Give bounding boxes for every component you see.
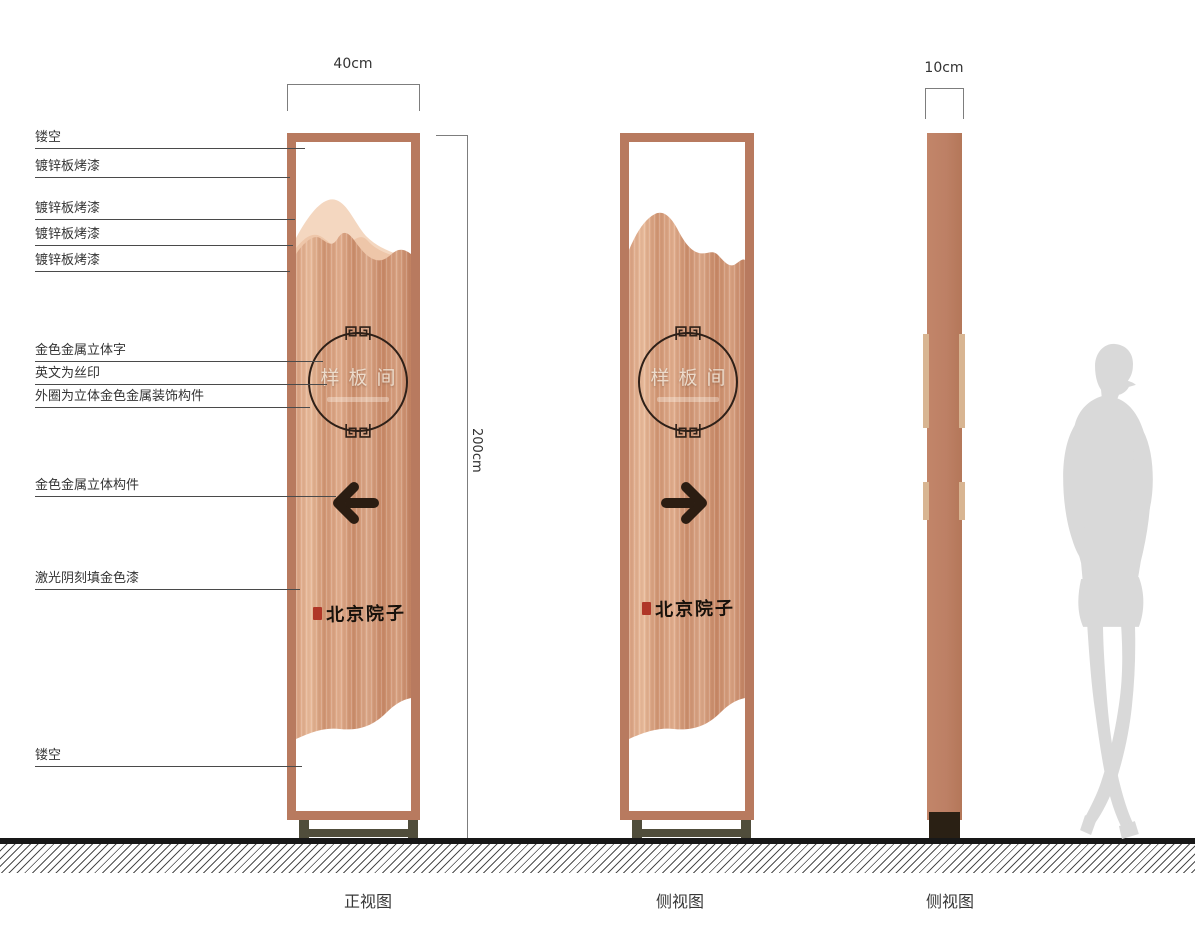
human-silhouette <box>1038 340 1170 848</box>
arrow-right-icon <box>660 481 710 526</box>
brand-text: 北京院子 <box>325 599 406 627</box>
callout-gold-metal-component: 金色金属立体构件 <box>35 478 336 497</box>
brand-text: 北京院子 <box>654 594 735 622</box>
dimension-height-label: 200cm <box>469 428 484 473</box>
callout-hollow-bottom: 镂空 <box>35 748 302 767</box>
fret-ornament-top-icon <box>345 326 371 340</box>
side2-protruding-arrow-right <box>959 482 965 520</box>
signage-spec-drawing: 样板间 北京院子 <box>0 0 1195 927</box>
plaque-english-silkprint <box>657 397 719 402</box>
red-seal-icon <box>642 602 651 615</box>
callout-label: 外圈为立体金色金属装饰构件 <box>35 389 204 404</box>
caption-side-view-1: 侧视图 <box>614 888 746 912</box>
fret-ornament-top-icon <box>675 326 701 340</box>
callout-label: 激光阴刻填金色漆 <box>35 571 139 586</box>
callout-label: 金色金属立体字 <box>35 343 126 358</box>
caption-front-view: 正视图 <box>302 888 434 912</box>
side2-base-block <box>929 812 960 838</box>
callout-outer-ring: 外圈为立体金色金属装饰构件 <box>35 389 310 408</box>
copper-panel-texture <box>629 213 745 739</box>
arrow-left-icon <box>330 481 380 526</box>
front-base-bar <box>305 829 413 837</box>
callout-label: 金色金属立体构件 <box>35 478 139 493</box>
dimension-width-label: 40cm <box>287 56 419 72</box>
dimension-height-line <box>467 135 468 838</box>
side1-brand: 北京院子 <box>629 595 747 621</box>
callout-label: 镀锌板烤漆 <box>35 227 100 242</box>
side1-base-bar <box>638 829 746 837</box>
callout-galvanized-2: 镀锌板烤漆 <box>35 201 295 220</box>
dimension-depth-bracket <box>925 88 964 119</box>
side1-sign-panel <box>629 142 745 811</box>
callout-galvanized-3: 镀锌板烤漆 <box>35 227 293 246</box>
dimension-height-tick <box>436 135 467 136</box>
callout-label: 镀锌板烤漆 <box>35 253 100 268</box>
callout-label: 镀锌板烤漆 <box>35 159 100 174</box>
callout-hollow-top: 镂空 <box>35 130 305 149</box>
plaque-text: 样板间 <box>650 363 734 390</box>
side2-profile-bar <box>927 133 962 820</box>
side2-protruding-arrow-left <box>923 482 929 520</box>
callout-label: 镀锌板烤漆 <box>35 201 100 216</box>
ground-line <box>0 838 1195 844</box>
plaque-text: 样板间 <box>320 363 404 390</box>
side2-protruding-ring-left <box>923 334 929 428</box>
callout-label: 镂空 <box>35 130 61 145</box>
ground-hatch <box>0 844 1195 873</box>
callout-english-silkprint: 英文为丝印 <box>35 366 327 385</box>
dimension-width-bracket <box>287 84 420 111</box>
fret-ornament-bottom-icon <box>345 424 371 438</box>
silhouette-head <box>1095 344 1136 400</box>
silhouette-hips <box>1078 577 1143 627</box>
callout-laser-engrave: 激光阴刻填金色漆 <box>35 571 300 590</box>
callout-galvanized-4: 镀锌板烤漆 <box>35 253 290 272</box>
plaque-english-silkprint <box>327 397 389 402</box>
fret-ornament-bottom-icon <box>675 424 701 438</box>
caption-side-view-2: 侧视图 <box>884 888 1016 912</box>
red-seal-icon <box>313 607 322 620</box>
callout-galvanized-1: 镀锌板烤漆 <box>35 159 290 178</box>
side2-protruding-ring-right <box>959 334 965 428</box>
side1-plaque-circle: 样板间 <box>638 332 738 432</box>
callout-gold-metal-letters: 金色金属立体字 <box>35 343 323 362</box>
dimension-depth-label: 10cm <box>924 60 964 76</box>
front-brand: 北京院子 <box>300 600 418 626</box>
front-sign-frame <box>287 133 420 820</box>
callout-label: 英文为丝印 <box>35 366 100 381</box>
callout-label: 镂空 <box>35 748 61 763</box>
side1-sign-frame <box>620 133 754 820</box>
front-sign-panel <box>296 142 411 811</box>
